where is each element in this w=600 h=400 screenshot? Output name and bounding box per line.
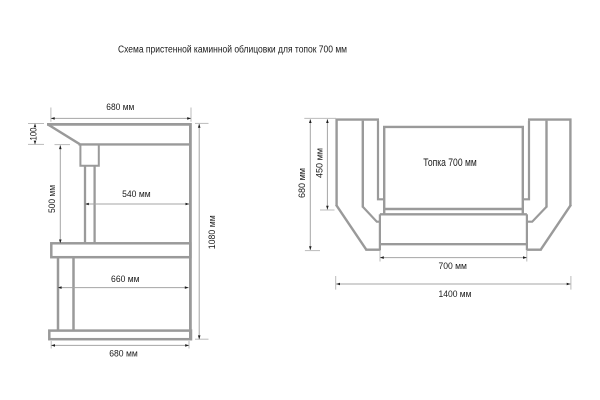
svg-text:680 мм: 680 мм (109, 349, 138, 360)
svg-text:100: 100 (29, 128, 40, 141)
svg-text:540 мм: 540 мм (122, 189, 151, 200)
svg-text:1400 мм: 1400 мм (439, 289, 472, 300)
svg-text:Схема пристенной каминной обли: Схема пристенной каминной облицовки для … (118, 44, 347, 56)
svg-text:680 мм: 680 мм (106, 102, 134, 113)
svg-text:700 мм: 700 мм (438, 261, 467, 272)
svg-text:680 мм: 680 мм (297, 168, 308, 198)
svg-text:660 мм: 660 мм (111, 274, 140, 285)
svg-text:Топка 700 мм: Топка 700 мм (423, 157, 477, 169)
svg-text:450 мм: 450 мм (315, 148, 326, 178)
svg-text:1080 мм: 1080 мм (207, 215, 218, 249)
svg-text:500 мм: 500 мм (47, 185, 58, 213)
